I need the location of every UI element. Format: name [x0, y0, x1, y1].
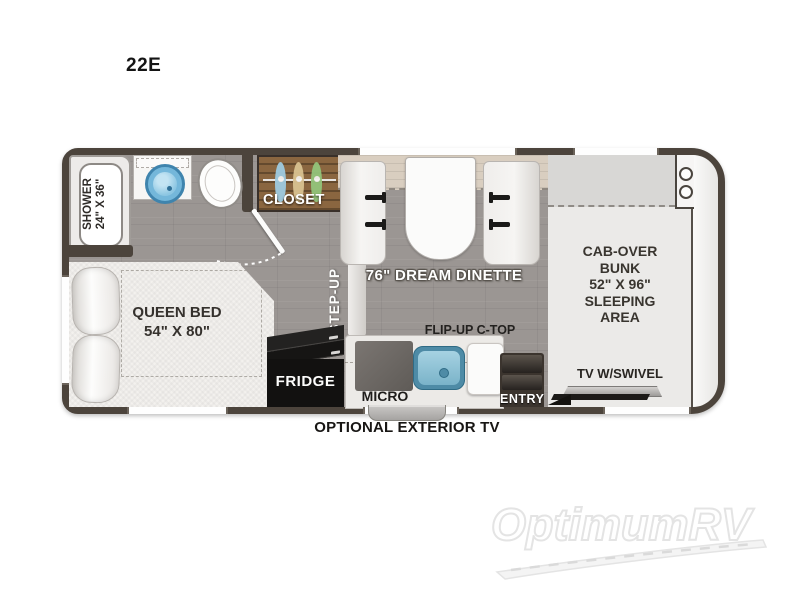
- dinette-bench-left: [340, 161, 386, 265]
- bed-label-line: 54" X 80": [97, 322, 257, 341]
- sink-drain-icon: [167, 186, 172, 191]
- cab-console: [675, 155, 694, 209]
- dinette-bench-right: [483, 161, 540, 265]
- seatbelt-icon: [490, 222, 510, 227]
- window: [62, 275, 69, 385]
- interior-wall: [69, 245, 133, 257]
- queen-bed-label: QUEEN BED 54" X 80": [97, 303, 257, 341]
- bed-label-line: QUEEN BED: [97, 303, 257, 322]
- entry-steps: ENTRY: [500, 353, 544, 407]
- dinette-label: 76" DREAM DINETTE: [349, 267, 539, 284]
- pillow-icon: [71, 334, 121, 404]
- fridge: FRIDGE: [267, 359, 344, 407]
- bathroom-wall: [242, 155, 253, 212]
- window: [127, 407, 228, 414]
- closet: CLOSET: [257, 155, 342, 212]
- toilet-icon: [191, 152, 249, 214]
- shower-label-line: 24" X 36": [95, 158, 108, 250]
- bunk-head-band: [548, 155, 675, 207]
- shower-label: SHOWER 24" X 36": [82, 158, 118, 250]
- bunk-label-line: SLEEPING: [556, 293, 684, 310]
- kitchen-sink-drain-icon: [439, 368, 449, 378]
- cab-front-area: [693, 155, 718, 407]
- floorplan-diagram: CAB-OVER BUNK 52" X 96" SLEEPING AREA TV…: [62, 148, 725, 414]
- shower-pan: SHOWER 24" X 36": [69, 155, 131, 253]
- watermark-text: OptimumRV: [491, 499, 755, 550]
- closet-label: CLOSET: [263, 192, 325, 208]
- seatbelt-icon: [365, 195, 385, 200]
- window: [573, 148, 659, 155]
- bunk-label-line: BUNK: [556, 260, 684, 277]
- bunk-label-line: AREA: [556, 309, 684, 326]
- micro-label: MICRO: [345, 388, 425, 404]
- bunk-label: CAB-OVER BUNK 52" X 96" SLEEPING AREA: [556, 243, 684, 326]
- seatbelt-icon: [365, 222, 385, 227]
- entry-step: [502, 355, 542, 373]
- console-knob-icon: [679, 185, 693, 199]
- optimumrv-watermark: OptimumRV: [487, 490, 777, 585]
- kitchen-sink-basin: [418, 351, 460, 385]
- shower-label-line: SHOWER: [82, 158, 95, 250]
- exterior-tv-caption: OPTIONAL EXTERIOR TV: [262, 419, 552, 436]
- dinette-table: [405, 157, 476, 260]
- sink-basin: [153, 172, 177, 196]
- window: [358, 148, 517, 155]
- step-up-text: STEP-UP: [327, 268, 342, 334]
- flip-up-counter: [467, 343, 504, 395]
- exterior-tv-icon: [368, 405, 446, 421]
- entry-step: [502, 375, 542, 390]
- console-knob-icon: [679, 167, 693, 181]
- entry-label: ENTRY: [500, 392, 544, 406]
- tv-swivel-label: TV W/SWIVEL: [556, 366, 684, 381]
- toilet-seat: [200, 161, 240, 205]
- floorplan-page: 22E CAB-OVER BUNK 52" X 96" SLEEPING ARE…: [0, 0, 800, 600]
- cooktop: [355, 341, 413, 391]
- flip-up-ctop-label: FLIP-UP C-TOP: [409, 323, 531, 337]
- bunk-label-line: CAB-OVER: [556, 243, 684, 260]
- bunk-label-line: 52" X 96": [556, 276, 684, 293]
- kitchen-sink-icon: [413, 346, 465, 390]
- seatbelt-icon: [490, 195, 510, 200]
- window: [603, 407, 691, 414]
- bathroom-sink-icon: [145, 164, 185, 204]
- floorplan-title: 22E: [126, 55, 161, 77]
- fridge-label: FRIDGE: [267, 373, 344, 390]
